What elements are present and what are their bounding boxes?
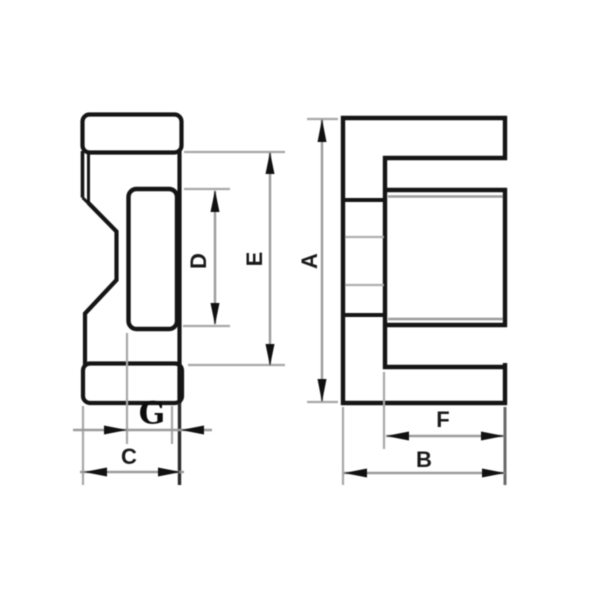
drawing-geometry (0, 0, 600, 600)
technical-drawing: D E A G C F B (0, 0, 600, 600)
arrow-f-left (386, 432, 409, 441)
dimension-label-b: B (416, 449, 432, 471)
arrow-b-left (344, 469, 367, 478)
dimension-label-d: D (188, 253, 210, 269)
right-view-arms-and-block (383, 156, 507, 369)
right-view-spine-dividers (343, 200, 385, 315)
left-view-top-flange (83, 115, 182, 153)
right-view (341, 116, 507, 405)
arrow-g-left (104, 426, 127, 435)
arrow-a-up (318, 119, 327, 142)
right-view-block-inner-edges (388, 197, 503, 320)
arrow-e-down (266, 344, 275, 366)
dimension-label-a: A (299, 253, 321, 269)
right-view-hidden-lines (345, 237, 384, 285)
dimension-label-e: E (244, 252, 266, 267)
dimension-label-c: C (121, 446, 137, 468)
arrow-e-up (266, 152, 275, 174)
arrow-g-right (181, 426, 204, 435)
left-view (83, 115, 183, 404)
dimension-label-f: F (436, 409, 449, 431)
arrow-a-down (318, 379, 327, 402)
arrow-c-left (84, 468, 107, 477)
arrow-d-down (211, 303, 220, 325)
arrow-b-right (482, 469, 505, 478)
arrow-c-right (158, 468, 181, 477)
left-view-bottom-flange (83, 364, 182, 404)
arrow-f-right (481, 432, 504, 441)
left-view-winding-window (129, 189, 178, 329)
arrow-d-up (211, 190, 220, 212)
left-view-waist-profile (85, 203, 117, 365)
dimension-label-g: G (139, 399, 165, 430)
